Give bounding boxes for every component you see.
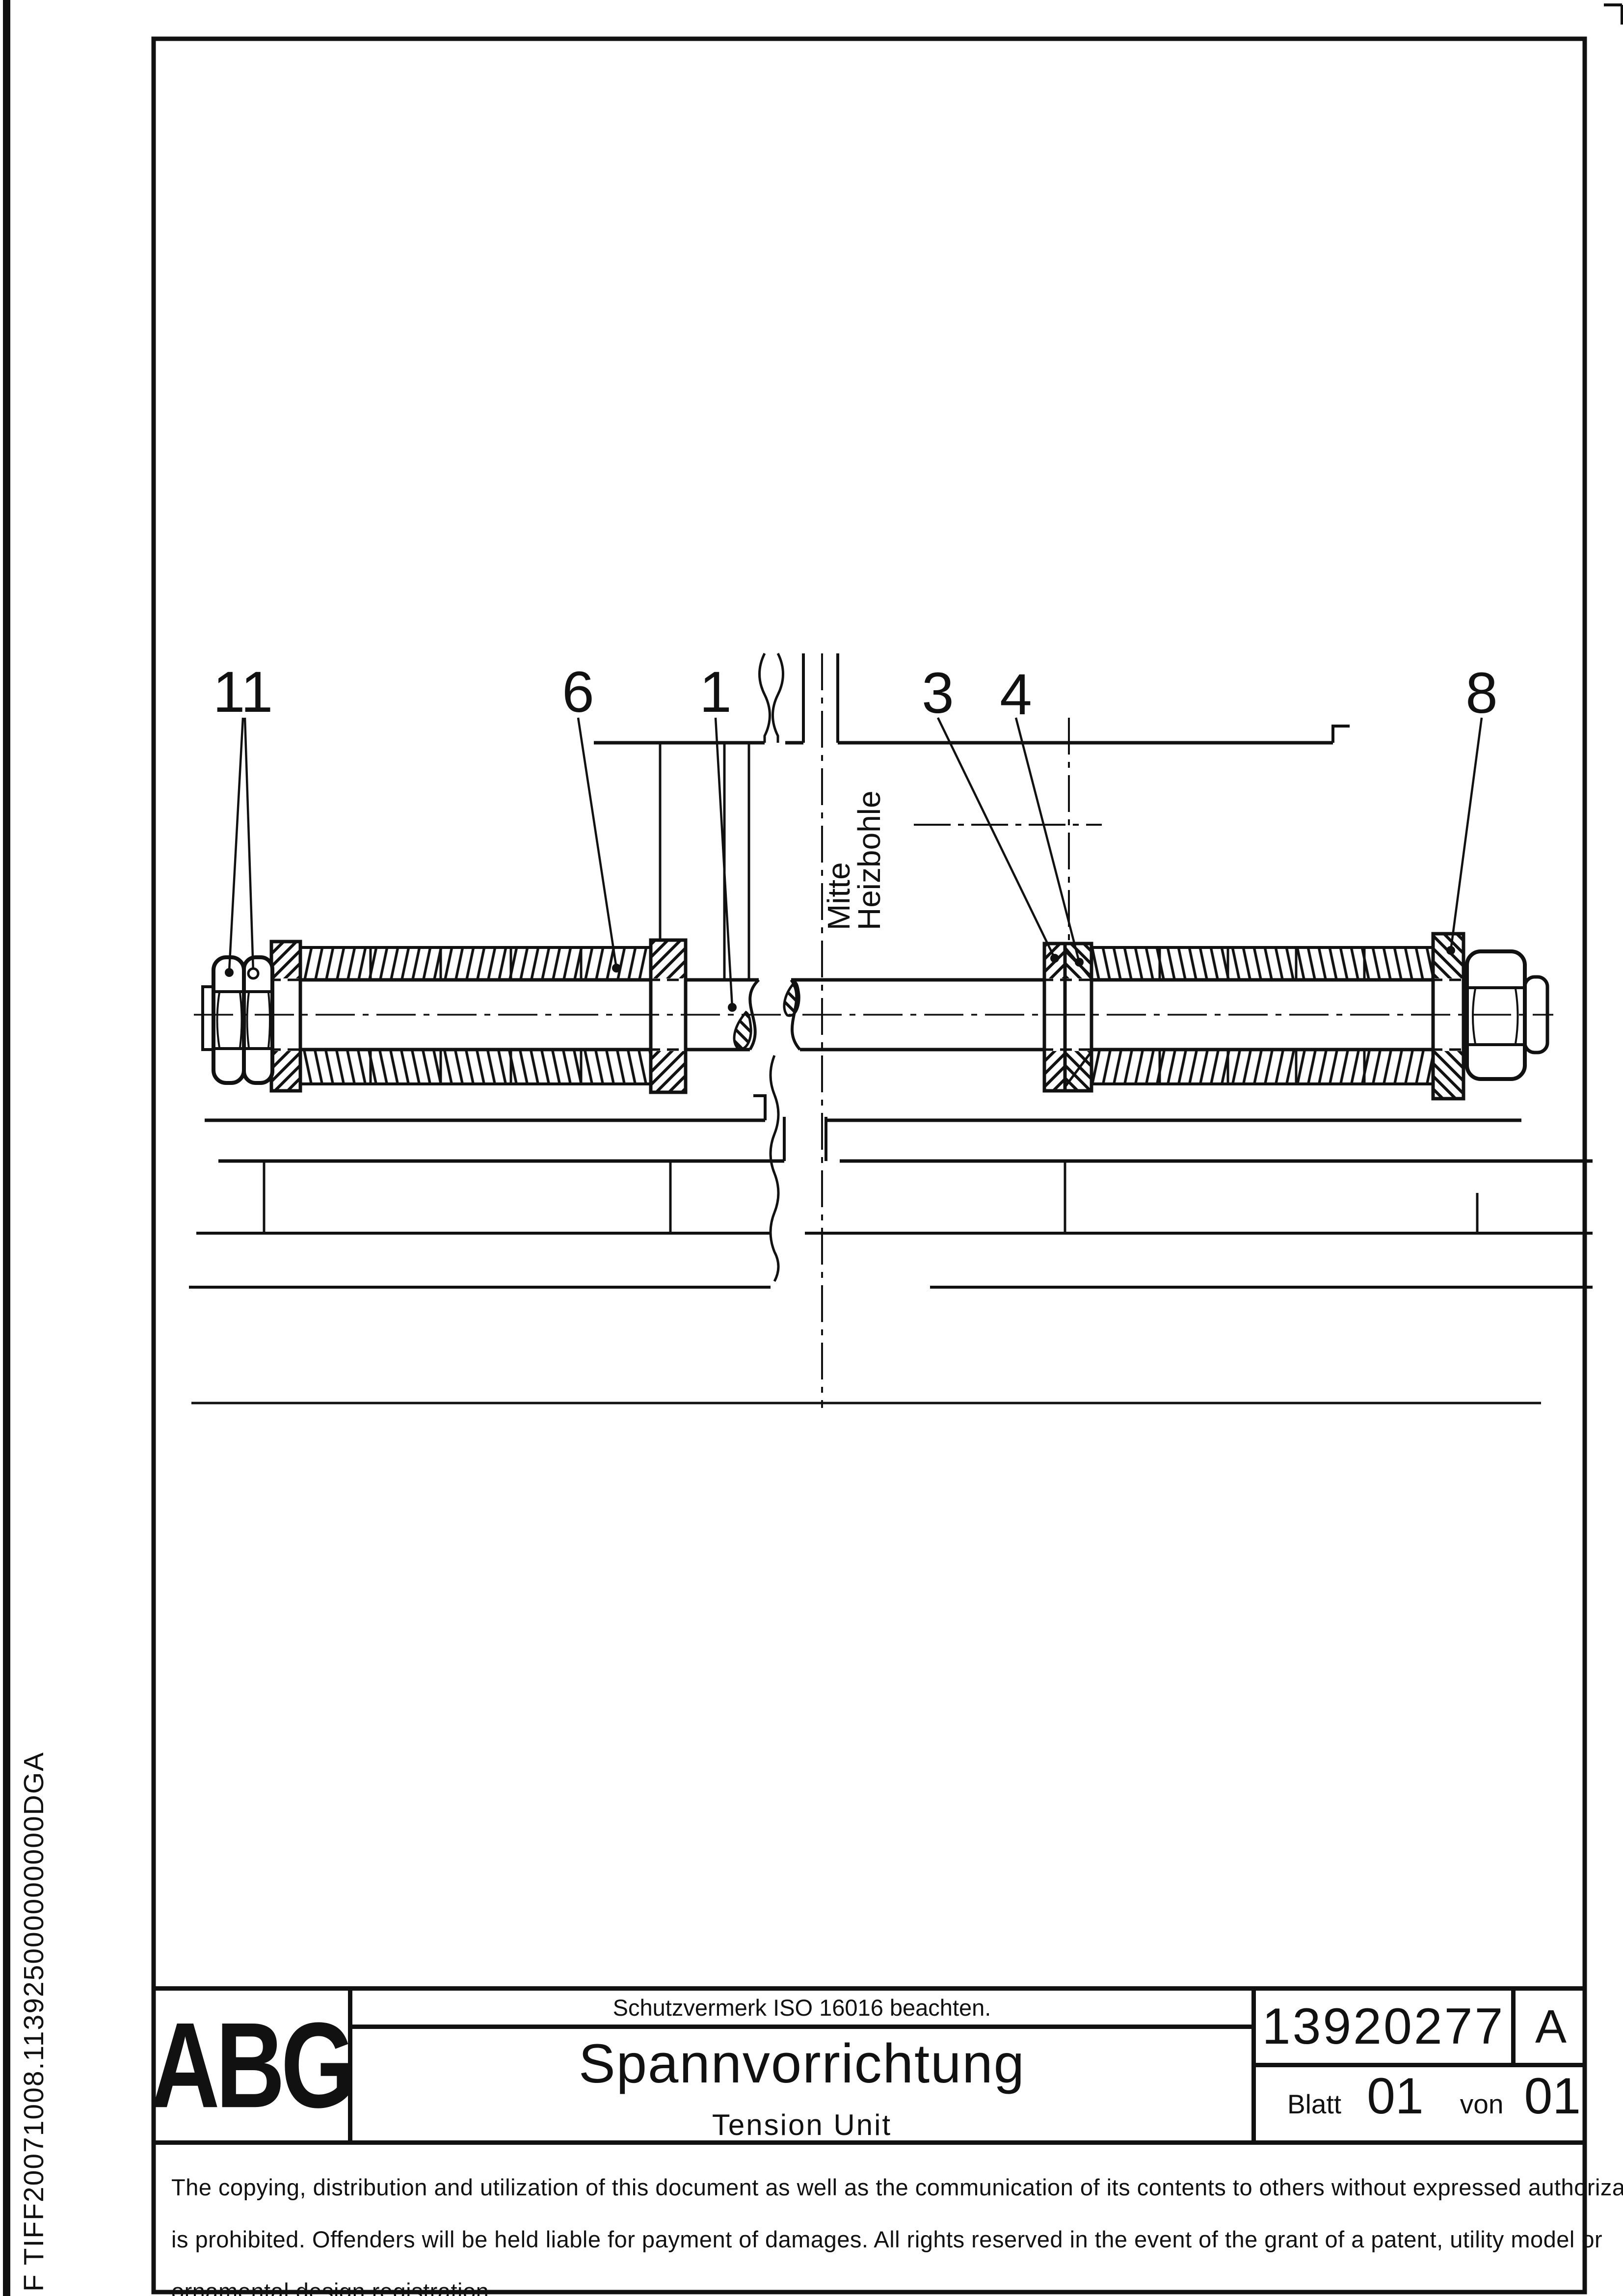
sheet-frame	[154, 5, 1622, 2292]
sheet-total: 01	[1524, 2067, 1581, 2126]
title-block: ABG Schutzvermerk ISO 16016 beachten. Sp…	[154, 1986, 1586, 2140]
break-line-lower	[771, 1055, 778, 1281]
technical-drawing: 11 6 1 3 4 8 Mitte Heizbohle	[0, 0, 1623, 2296]
company-logo: ABG	[150, 2005, 351, 2127]
disclaimer-line-3: ornamental design registration.	[171, 2266, 1571, 2296]
drawing-title: Spannvorrichtung	[579, 2032, 1025, 2095]
legal-disclaimer: The copying, distribution and utilizatio…	[154, 2140, 1586, 2293]
protection-notice: Schutzvermerk ISO 16016 beachten.	[352, 1991, 1251, 2029]
sheet-info-cell: Blatt 01 von 01	[1251, 2067, 1586, 2140]
title-cell: Schutzvermerk ISO 16016 beachten. Spannv…	[352, 1991, 1251, 2140]
left-lock-nuts	[203, 957, 272, 1083]
document-number-cell: 13920277	[1251, 1991, 1511, 2067]
sheet-number: 01	[1367, 2067, 1424, 2126]
heater-bar-edges	[803, 653, 838, 743]
drawing-sheet: F TIFF20071008.113925000000000DGA	[0, 0, 1623, 2296]
part-label-11: 11	[213, 660, 273, 725]
logo-cell: ABG	[154, 1991, 352, 2140]
corner-mark	[1604, 5, 1622, 25]
revision-cell: A	[1511, 1991, 1586, 2067]
part-label-6: 6	[562, 660, 594, 725]
tie-rod	[255, 980, 1525, 1281]
left-spring-end-washer	[648, 940, 688, 1092]
of-word: von	[1460, 2088, 1504, 2120]
part-label-8: 8	[1465, 661, 1498, 726]
part-label-1: 1	[699, 660, 732, 725]
disclaimer-line-2: is prohibited. Offenders will be held li…	[171, 2214, 1571, 2266]
sheet-word: Blatt	[1287, 2088, 1341, 2120]
centre-spacer-washers	[1041, 944, 1094, 1091]
drawing-subtitle: Tension Unit	[712, 2108, 892, 2142]
part-number-labels: 11 6 1 3 4 8	[213, 660, 1498, 727]
axis-label-line2: Heizbohle	[851, 790, 887, 930]
break-line-upper-left	[760, 653, 770, 743]
right-washer	[1431, 934, 1466, 1099]
revision-letter: A	[1535, 2000, 1567, 2054]
part-label-4: 4	[1000, 662, 1032, 727]
disclaimer-line-1: The copying, distribution and utilizatio…	[171, 2161, 1571, 2214]
document-number: 13920277	[1262, 1998, 1505, 2056]
support-structure	[189, 1096, 1593, 1403]
part-label-3: 3	[922, 661, 954, 726]
axis-label: Mitte Heizbohle	[821, 790, 887, 930]
break-line-upper-right	[773, 653, 783, 743]
